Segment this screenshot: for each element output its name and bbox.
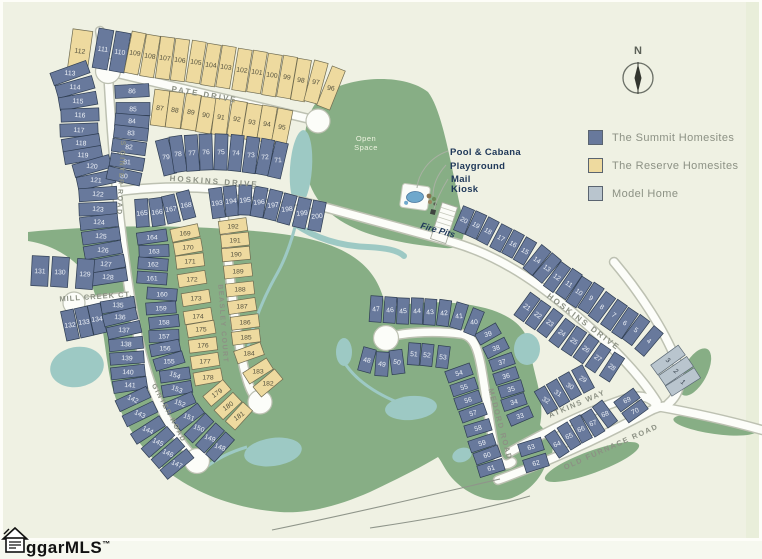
lot-159-label: 159 xyxy=(155,305,167,312)
lot-78-label: 78 xyxy=(174,151,182,158)
reserve-color-swatch xyxy=(588,158,603,173)
lot-189-label: 189 xyxy=(232,268,244,275)
lot-155-label: 155 xyxy=(163,358,175,365)
open-space-label-line2: Space xyxy=(354,143,378,152)
lot-166-label: 166 xyxy=(151,209,163,217)
lot-42-label: 42 xyxy=(440,310,448,318)
lot-141-label: 141 xyxy=(124,382,136,390)
lot-75-label: 75 xyxy=(217,149,225,156)
lot-161-label: 161 xyxy=(146,275,158,282)
lot-162-label: 162 xyxy=(147,261,159,268)
site-map: 1121111101091081071061051041031021011009… xyxy=(0,0,762,559)
lot-41-label: 41 xyxy=(455,313,463,321)
lot-73-label: 73 xyxy=(247,152,255,159)
lot-43-label: 43 xyxy=(426,309,434,317)
lot-131-label: 131 xyxy=(34,268,46,275)
lot-50-label: 50 xyxy=(393,359,402,367)
legend-label-model: Model Home xyxy=(612,188,678,200)
lot-74-label: 74 xyxy=(232,150,240,157)
lot-157-label: 157 xyxy=(158,333,170,340)
footer-strip xyxy=(0,541,762,559)
lot-95-label: 95 xyxy=(278,124,287,132)
lot-172-label: 172 xyxy=(186,276,198,283)
legend-item-summit: The Summit Homesites xyxy=(588,130,738,145)
lot-158-label: 158 xyxy=(158,319,170,326)
amenity-label-3: Kiosk xyxy=(451,184,479,195)
lot-173-label: 173 xyxy=(190,295,202,302)
lot-40-label: 40 xyxy=(470,319,478,327)
lot-170-label: 170 xyxy=(182,244,194,251)
compass-north-label: N xyxy=(634,45,642,57)
house-icon xyxy=(1,524,29,556)
lot-133-label: 133 xyxy=(78,319,90,327)
lot-198-label: 198 xyxy=(281,206,293,214)
lot-191-label: 191 xyxy=(229,237,241,244)
lot-83-label: 83 xyxy=(127,130,135,137)
lot-134-label: 134 xyxy=(91,316,103,324)
model-color-swatch xyxy=(588,186,603,201)
lot-53-label: 53 xyxy=(439,354,447,362)
lot-89-label: 89 xyxy=(187,109,196,117)
site-plan-image: 1121111101091081071061051041031021011009… xyxy=(0,0,762,559)
lot-169-label: 169 xyxy=(179,230,191,237)
lot-118-label: 118 xyxy=(75,140,87,148)
lot-190-label: 190 xyxy=(230,251,242,258)
lot-174-label: 174 xyxy=(192,313,204,320)
lot-48-label: 48 xyxy=(363,357,372,365)
lot-88-label: 88 xyxy=(171,107,180,115)
pool-icon xyxy=(399,183,430,211)
legend-label-reserve: The Reserve Homesites xyxy=(612,160,738,172)
lot-84-label: 84 xyxy=(128,118,136,125)
lot-117-label: 117 xyxy=(73,127,85,135)
watermark-text: ggarMLS™ xyxy=(26,539,111,556)
map-edge-strip xyxy=(746,2,759,538)
lot-193-label: 193 xyxy=(211,200,223,208)
lot-45-label: 45 xyxy=(399,308,407,316)
legend-item-model: Model Home xyxy=(588,186,738,201)
lot-188-label: 188 xyxy=(234,286,246,293)
lot-116-label: 116 xyxy=(74,112,86,120)
lot-194-label: 194 xyxy=(225,198,237,206)
lot-167-label: 167 xyxy=(165,206,177,214)
lot-72-label: 72 xyxy=(261,154,269,161)
lot-140-label: 140 xyxy=(122,369,134,377)
lot-114-label: 114 xyxy=(69,84,81,92)
lot-49-label: 49 xyxy=(378,361,387,369)
lot-197-label: 197 xyxy=(267,202,279,210)
lot-46-label: 46 xyxy=(386,307,394,315)
lot-168-label: 168 xyxy=(180,202,192,210)
lot-192-label: 192 xyxy=(227,223,239,230)
amenity-label-1: Playground xyxy=(450,161,505,172)
legend-item-reserve: The Reserve Homesites xyxy=(588,158,738,173)
lot-175-label: 175 xyxy=(195,326,207,333)
summit-color-swatch xyxy=(588,130,603,145)
lot-90-label: 90 xyxy=(202,112,211,120)
lot-126-label: 126 xyxy=(97,247,109,255)
lot-79-label: 79 xyxy=(162,154,170,161)
lot-165-label: 165 xyxy=(136,210,148,218)
lot-177-label: 177 xyxy=(199,358,211,365)
lot-186-label: 186 xyxy=(239,319,251,326)
lot-183-label: 183 xyxy=(252,368,264,375)
lot-91-label: 91 xyxy=(217,114,226,122)
pond-mid xyxy=(336,338,352,366)
lot-123-label: 123 xyxy=(92,206,104,214)
lot-120-label: 120 xyxy=(86,163,98,171)
lot-130-label: 130 xyxy=(54,269,66,276)
lot-182-label: 182 xyxy=(262,380,274,387)
lot-85-label: 85 xyxy=(129,106,137,113)
pond-east xyxy=(514,333,540,365)
lot-139-label: 139 xyxy=(121,355,133,363)
lot-92-label: 92 xyxy=(233,116,242,124)
lot-171-label: 171 xyxy=(184,258,196,265)
lot-97-label: 97 xyxy=(312,79,321,87)
lot-184-label: 184 xyxy=(243,350,255,357)
lot-128-label: 128 xyxy=(102,274,114,282)
lot-132-label: 132 xyxy=(64,322,76,330)
lot-137-label: 137 xyxy=(118,327,130,335)
lot-121-label: 121 xyxy=(90,177,102,185)
lot-176-label: 176 xyxy=(197,342,209,349)
lot-178-label: 178 xyxy=(202,374,214,381)
lot-111-label: 111 xyxy=(97,46,108,54)
lot-200-label: 200 xyxy=(311,213,323,221)
lot-77-label: 77 xyxy=(188,150,196,157)
cul-de-sac-medord-loop xyxy=(374,326,399,351)
lot-44-label: 44 xyxy=(413,308,421,316)
legend: The Summit Homesites The Reserve Homesit… xyxy=(588,130,738,214)
lot-138-label: 138 xyxy=(120,341,132,349)
lot-164-label: 164 xyxy=(146,234,158,241)
lot-163-label: 163 xyxy=(148,248,160,255)
lot-51-label: 51 xyxy=(410,351,418,359)
lot-135-label: 135 xyxy=(112,302,124,310)
lot-125-label: 125 xyxy=(95,233,107,241)
lot-113-label: 113 xyxy=(64,70,76,78)
lot-71-label: 71 xyxy=(274,157,282,164)
lot-93-label: 93 xyxy=(248,119,257,127)
lot-76-label: 76 xyxy=(202,149,210,156)
lot-96-label: 96 xyxy=(327,85,336,93)
lot-98-label: 98 xyxy=(297,77,306,85)
cul-de-sac-pate-east xyxy=(306,109,330,133)
lot-86-label: 86 xyxy=(128,88,136,95)
lot-185-label: 185 xyxy=(240,334,252,341)
lot-195-label: 195 xyxy=(239,197,251,205)
lot-122-label: 122 xyxy=(92,191,104,199)
lot-199-label: 199 xyxy=(296,210,308,218)
lot-124-label: 124 xyxy=(93,219,105,227)
lot-160-label: 160 xyxy=(156,291,168,298)
open-space-label-line1: Open xyxy=(356,134,376,143)
lot-94-label: 94 xyxy=(263,121,272,129)
lot-127-label: 127 xyxy=(100,261,112,269)
lot-87-label: 87 xyxy=(156,105,165,113)
amenity-label-0: Pool & Cabana xyxy=(450,147,521,158)
lot-196-label: 196 xyxy=(253,199,265,207)
lot-47-label: 47 xyxy=(372,306,380,314)
lot-119-label: 119 xyxy=(77,152,89,160)
lot-187-label: 187 xyxy=(236,303,248,310)
lot-52-label: 52 xyxy=(423,352,431,360)
watermark-logo: ggarMLS™ xyxy=(1,524,111,556)
lot-156-label: 156 xyxy=(159,345,171,352)
lot-136-label: 136 xyxy=(114,314,126,322)
legend-label-summit: The Summit Homesites xyxy=(612,132,734,144)
lot-129-label: 129 xyxy=(79,271,91,278)
lot-115-label: 115 xyxy=(72,98,84,106)
lot-99-label: 99 xyxy=(283,74,292,82)
